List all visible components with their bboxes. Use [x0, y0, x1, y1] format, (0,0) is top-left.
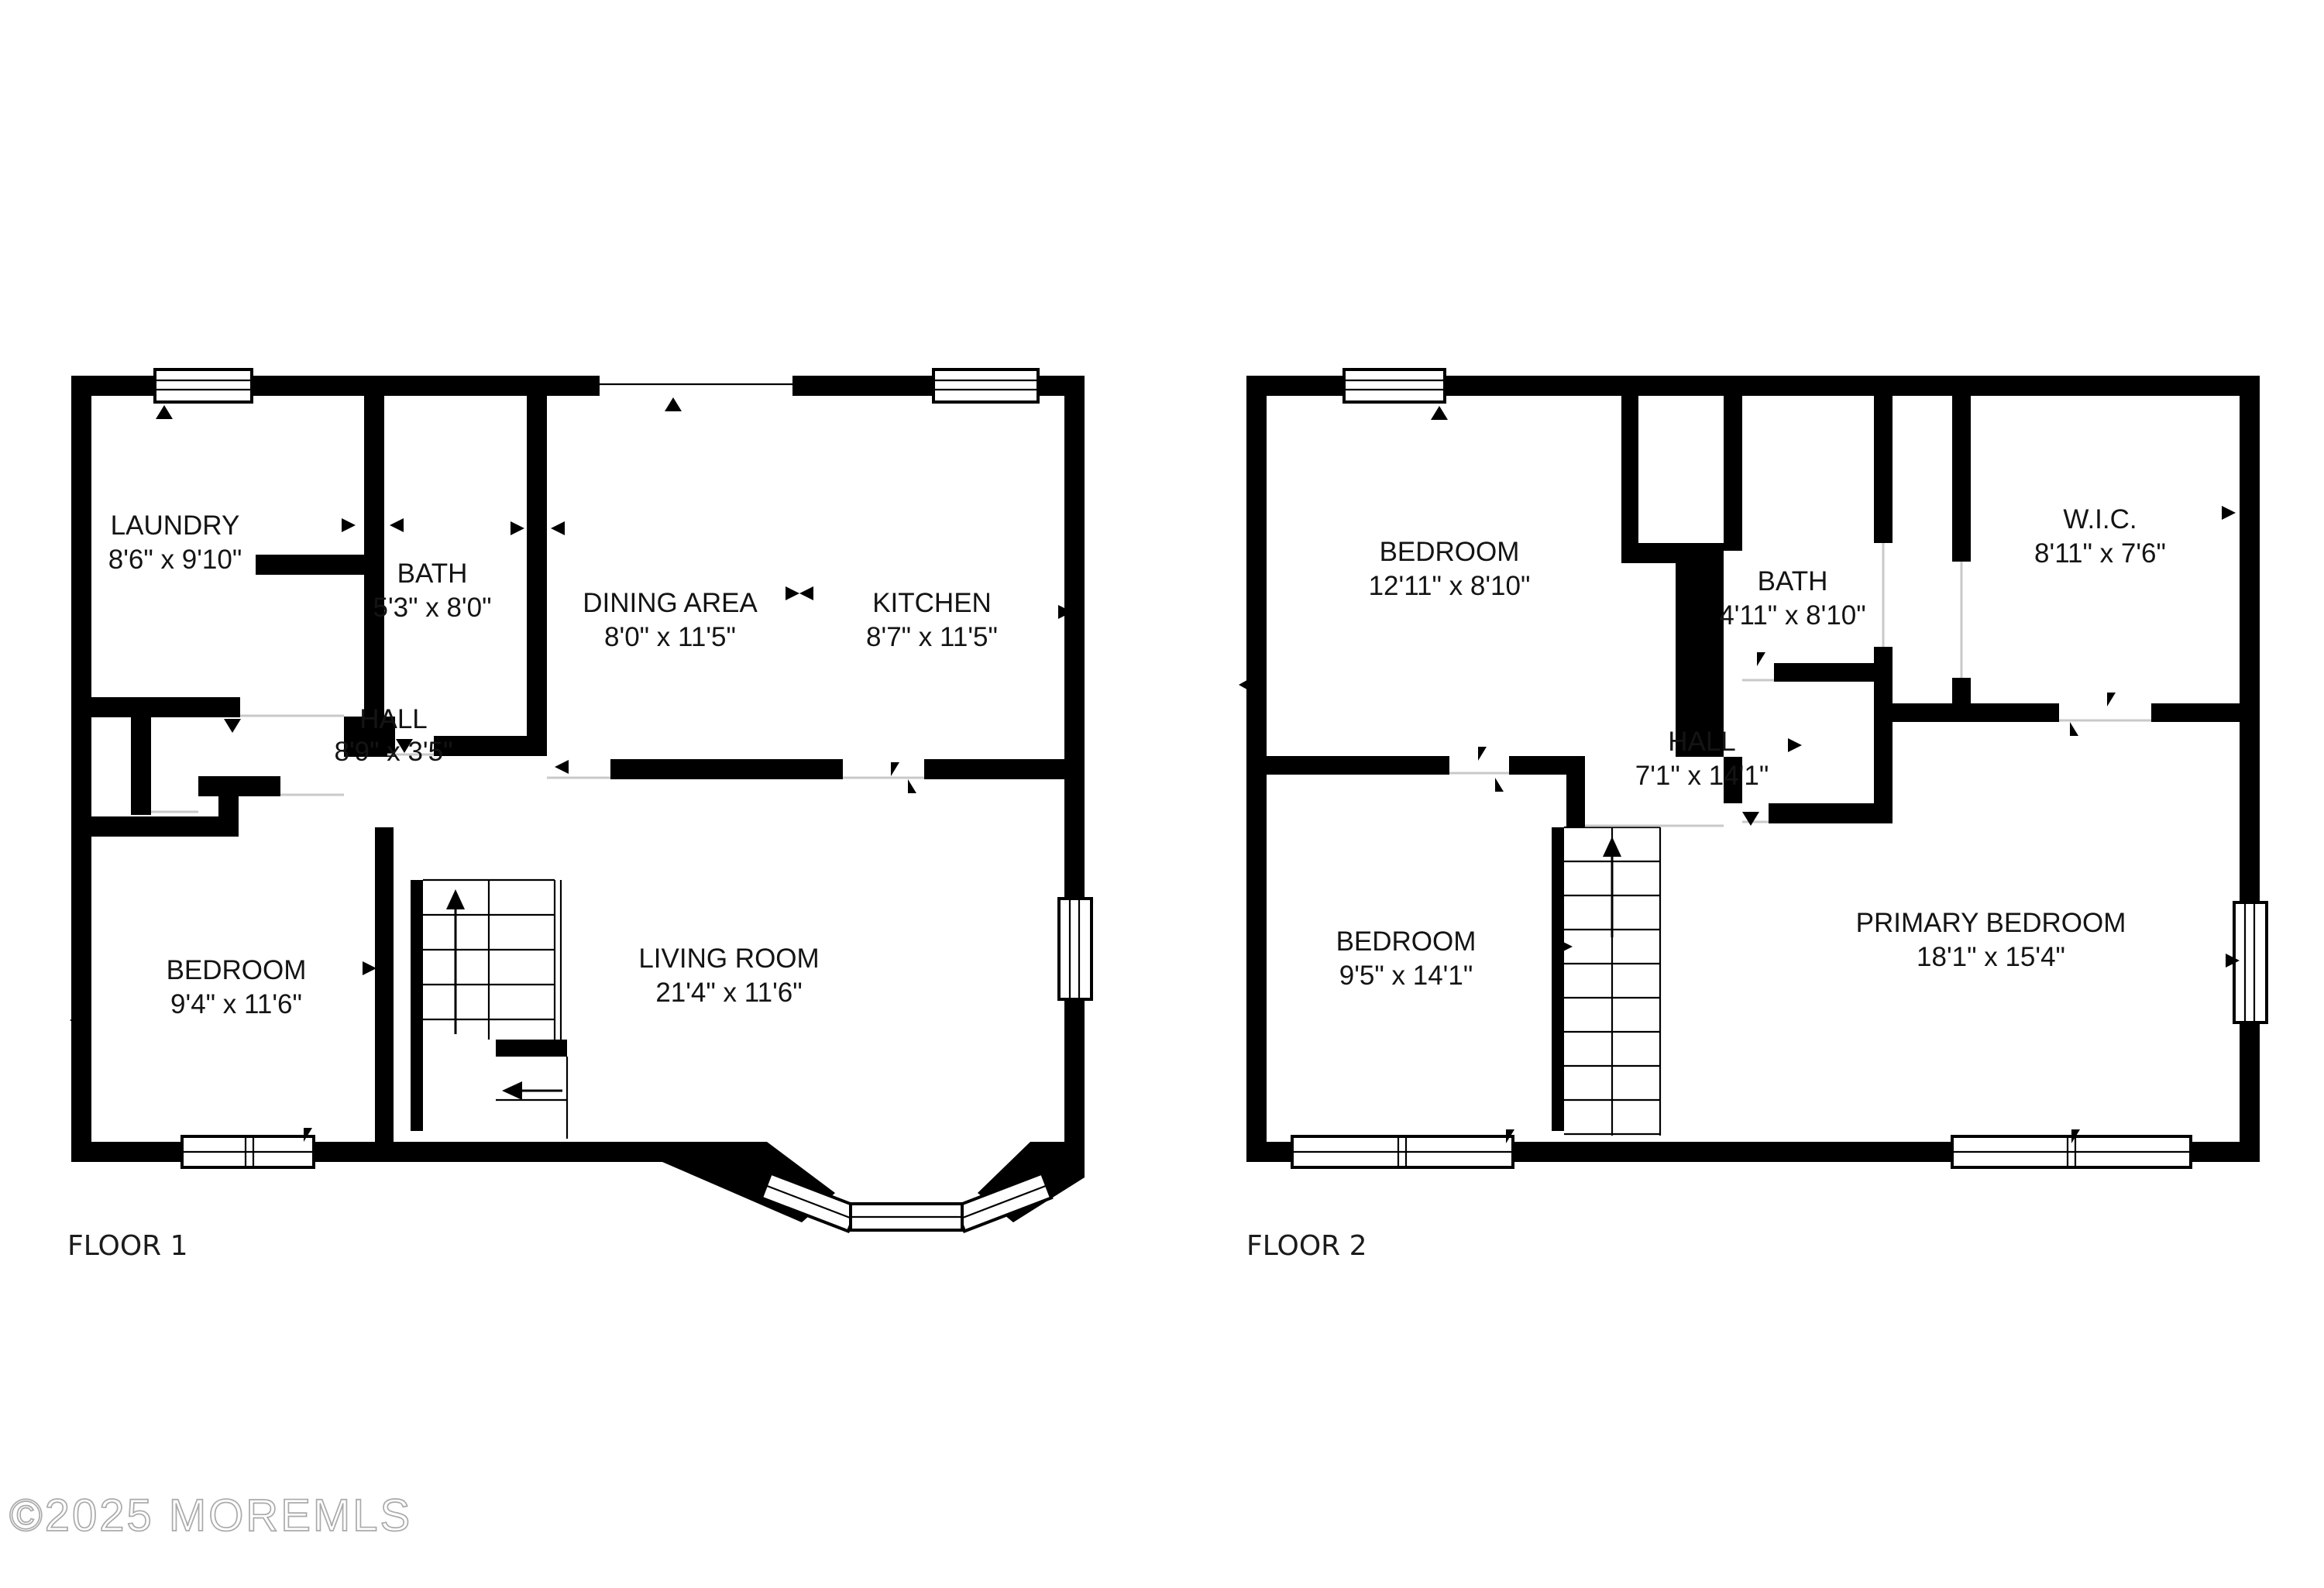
room-label-laundry-dims: 8'6" x 9'10" — [108, 545, 242, 575]
floorplan-page: LAUNDRY 8'6" x 9'10" BATH 5'3" x 8'0" DI… — [0, 0, 2324, 1588]
room-label-bedroom2-name: BEDROOM — [1380, 537, 1520, 567]
room-label-hall1-dims: 8'9" x 3'5" — [334, 737, 452, 767]
floorplan-drawing: LAUNDRY 8'6" x 9'10" BATH 5'3" x 8'0" DI… — [0, 0, 2324, 1588]
room-label-living-name: LIVING ROOM — [638, 944, 819, 974]
room-label-bedroom3-name: BEDROOM — [1336, 926, 1477, 957]
floor1-labels: LAUNDRY 8'6" x 9'10" BATH 5'3" x 8'0" DI… — [108, 510, 998, 1019]
primary-side-window — [2234, 902, 2267, 1023]
room-label-kitchen-dims: 8'7" x 11'5" — [866, 622, 998, 652]
floor2-labels: BEDROOM 12'11" x 8'10" BATH 4'11" x 8'10… — [1336, 504, 2166, 991]
floor2-plan: BEDROOM 12'11" x 8'10" BATH 4'11" x 8'10… — [1239, 370, 2267, 1262]
floor1-plan: LAUNDRY 8'6" x 9'10" BATH 5'3" x 8'0" DI… — [67, 370, 1092, 1262]
floor1-staircase — [411, 880, 567, 1139]
kitchen-window — [933, 370, 1038, 402]
room-label-wic-dims: 8'11" x 7'6" — [2034, 538, 2166, 569]
room-label-bedroom1-dims: 9'4" x 11'6" — [170, 989, 302, 1019]
room-label-laundry-name: LAUNDRY — [111, 510, 240, 541]
room-label-bedroom2-dims: 12'11" x 8'10" — [1369, 571, 1531, 601]
floor1-caption: FLOOR 1 — [67, 1230, 188, 1262]
floor2-caption: FLOOR 2 — [1246, 1230, 1367, 1262]
room-label-wic-name: W.I.C. — [2063, 504, 2137, 534]
bay-window — [662, 1142, 1085, 1231]
room-label-bath2-dims: 4'11" x 8'10" — [1719, 600, 1865, 631]
floor1-walls — [71, 376, 1085, 1162]
room-label-bedroom1-name: BEDROOM — [167, 955, 307, 985]
room-label-hall2-name: HALL — [1668, 727, 1736, 757]
room-label-bath1-dims: 5'3" x 8'0" — [373, 593, 491, 623]
watermark: ©2025 MOREMLS — [9, 1490, 412, 1541]
laundry-window — [155, 370, 252, 402]
floor2-staircase — [1552, 827, 1660, 1136]
room-label-living-dims: 21'4" x 11'6" — [655, 978, 802, 1008]
room-label-bath2-name: BATH — [1758, 566, 1828, 596]
room-label-hall1-name: HALL — [359, 704, 428, 734]
room-label-dining-name: DINING AREA — [583, 588, 758, 618]
room-label-hall2-dims: 7'1" x 14'1" — [1635, 761, 1769, 791]
living-room-side-window — [1059, 899, 1092, 999]
room-label-primary-name: PRIMARY BEDROOM — [1856, 908, 2126, 938]
floor1-patio-slider — [600, 384, 792, 411]
room-label-dining-dims: 8'0" x 11'5" — [604, 622, 736, 652]
room-label-kitchen-name: KITCHEN — [872, 588, 992, 618]
bedroom3-bottom-window — [1292, 1136, 1513, 1167]
room-label-bedroom3-dims: 9'5" x 14'1" — [1339, 961, 1473, 991]
room-label-bath1-name: BATH — [397, 559, 468, 589]
bedroom1-window — [182, 1136, 314, 1167]
bedroom2-top-window — [1344, 370, 1445, 402]
room-label-primary-dims: 18'1" x 15'4" — [1917, 942, 2065, 972]
